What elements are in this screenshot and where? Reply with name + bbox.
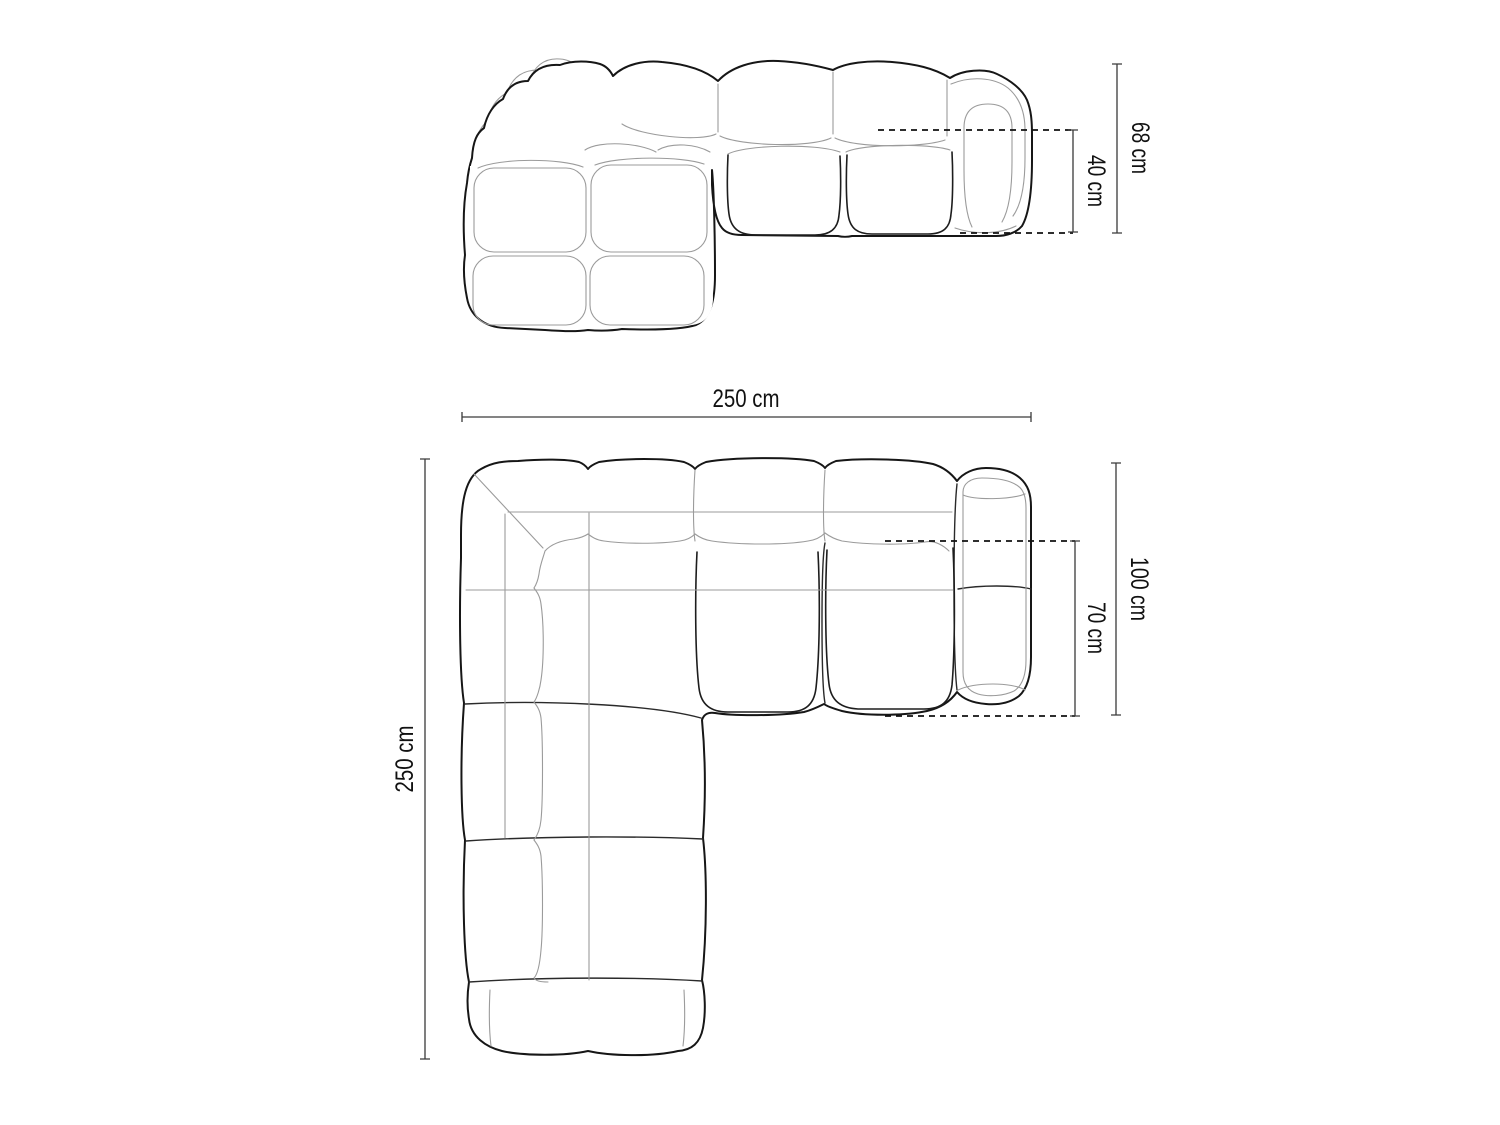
dimension-68cm: 68 cm — [1112, 64, 1154, 233]
dimension-250cm-width: 250 cm — [462, 385, 1031, 422]
diagram-canvas: 68 cm 40 cm — [0, 0, 1500, 1125]
plan-view: 250 cm 250 cm 100 cm 70 cm — [391, 385, 1153, 1059]
dimension-70cm-label: 70 cm — [1082, 602, 1110, 654]
dimension-250cm-depth-label: 250 cm — [391, 726, 419, 793]
dimension-250cm-width-label: 250 cm — [713, 385, 780, 413]
dimension-40cm-label: 40 cm — [1082, 155, 1110, 207]
dimension-68cm-label: 68 cm — [1126, 122, 1154, 174]
sofa-dimension-diagram: 68 cm 40 cm — [0, 0, 1500, 1125]
dimension-40cm: 40 cm — [1068, 130, 1110, 232]
dimension-70cm: 70 cm — [1070, 541, 1110, 716]
dimension-250cm-depth: 250 cm — [391, 459, 430, 1059]
elevation-view: 68 cm 40 cm — [464, 59, 1154, 331]
dimension-100cm: 100 cm — [1111, 463, 1153, 715]
dimension-100cm-label: 100 cm — [1125, 557, 1153, 621]
